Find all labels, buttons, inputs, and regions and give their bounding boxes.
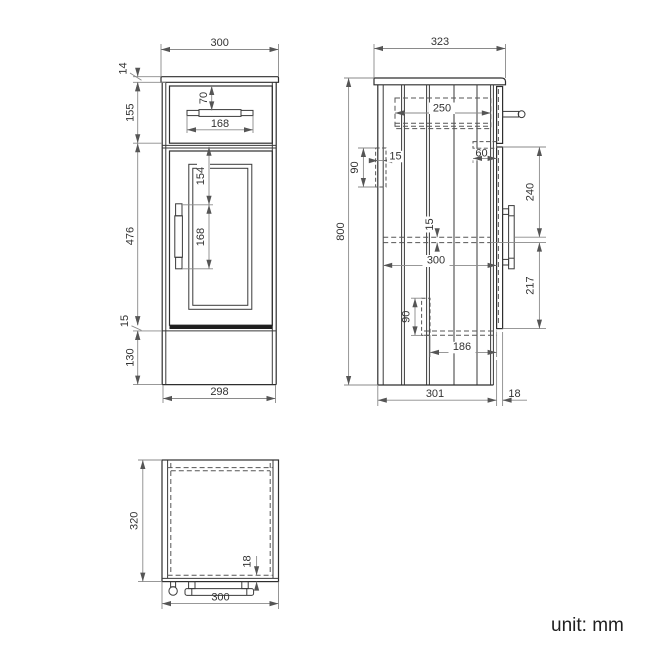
dim-label-side-total-height: 800	[335, 222, 347, 240]
dim-label-side-back-gap: 15	[389, 151, 401, 163]
dim-label-side-bracket-bottom: 90	[401, 311, 413, 323]
front-countertop	[161, 77, 279, 83]
top-view: 320 18 300	[129, 460, 279, 609]
dim-front-width-bottom: 298	[163, 385, 276, 403]
front-drawer-front	[170, 86, 273, 143]
dim-label-front-bottom-gap: 15	[119, 315, 131, 327]
dim-label-side-depth-bottom: 301	[426, 388, 444, 400]
dim-label-front-door-height: 476	[125, 227, 137, 245]
dim-side-bottom-rail: 186	[430, 332, 497, 357]
dim-side-total-height: 800	[335, 78, 378, 385]
dim-front-drawer-height: 155	[125, 82, 163, 143]
dim-label-front-door-handle-length: 168	[195, 228, 207, 246]
dim-side-door-thickness: 18	[503, 332, 527, 406]
dim-label-side-door-thickness: 18	[508, 388, 520, 400]
front-door-handle	[175, 204, 183, 269]
dim-front-plinth-height: 130	[125, 331, 163, 385]
side-countertop	[374, 78, 506, 85]
unit-label: unit: mm	[551, 615, 624, 636]
front-door-bottom-edge	[170, 325, 273, 329]
dim-label-front-door-handle-top: 154	[195, 167, 207, 185]
top-carcass	[162, 460, 279, 582]
dim-label-side-bottom-rail: 186	[453, 341, 471, 353]
dim-label-front-drawer-handle-width: 168	[211, 118, 229, 130]
top-cabinet-outline	[162, 460, 279, 582]
side-door-handle	[503, 206, 515, 269]
dim-label-side-handle-top-offset: 240	[525, 183, 537, 201]
dim-side-shelf-depth: 300	[383, 254, 496, 267]
dim-label-front-drawer-handle-offset: 70	[198, 92, 210, 104]
side-drawer	[395, 87, 525, 144]
side-view: 323 800 250 15 90	[335, 36, 546, 406]
front-door	[170, 151, 273, 329]
dim-top-door-thickness: 18	[242, 555, 257, 589]
dim-side-bracket-bottom: 90	[401, 298, 422, 335]
dim-front-door-height: 476	[125, 143, 138, 325]
dim-label-side-bracket-top: 90	[349, 161, 361, 173]
dim-side-bracket-top: 90	[349, 148, 376, 187]
dim-top-width: 300	[162, 582, 279, 609]
front-view: 300 14 155 476 15	[118, 37, 279, 403]
dim-label-top-depth: 320	[129, 512, 141, 530]
dim-label-side-depth-top: 323	[431, 36, 449, 48]
dim-label-top-door-thickness: 18	[242, 555, 254, 567]
drawing-svg: 300 14 155 476 15	[0, 0, 650, 650]
front-drawer-handle	[187, 110, 253, 117]
top-drawer-knob	[169, 582, 177, 596]
side-door-panel	[497, 147, 503, 329]
dim-front-drawer-handle-width: 168	[187, 116, 253, 133]
dim-label-side-handle-bottom: 217	[525, 276, 537, 294]
dim-label-side-hinge-depth: 60	[475, 148, 487, 160]
dim-label-front-width-bottom: 298	[210, 386, 228, 398]
cabinet-technical-drawing: 300 14 155 476 15	[0, 0, 650, 650]
dim-side-handle-top-offset: 240	[503, 147, 546, 237]
dim-side-drawer-depth: 250	[395, 103, 491, 115]
dim-label-side-shelf-thickness: 15	[424, 218, 436, 230]
side-drawer-knob	[503, 111, 525, 118]
front-door-panel	[170, 151, 273, 325]
dim-front-bottom-gap: 15	[119, 315, 162, 339]
dim-label-front-plinth-height: 130	[125, 348, 137, 366]
dim-label-side-shelf-depth: 300	[427, 254, 445, 266]
dim-top-depth: 320	[129, 460, 163, 582]
dim-front-door-handle-length: 168	[182, 205, 213, 269]
dim-side-back-gap: 15	[370, 151, 404, 163]
dim-label-side-drawer-depth: 250	[433, 103, 451, 115]
dim-side-depth-bottom: 301	[378, 360, 497, 406]
dim-label-front-counter-thickness: 14	[118, 62, 130, 74]
side-bracket-bottom-hidden	[422, 298, 430, 335]
dim-label-front-width-top: 300	[211, 37, 229, 49]
front-drawer	[170, 86, 273, 143]
dim-front-counter-thickness: 14	[118, 62, 166, 89]
side-brackets-and-shelf	[376, 148, 497, 335]
dim-side-depth-top: 323	[374, 36, 506, 78]
dim-label-top-width: 300	[211, 592, 229, 604]
side-drawer-front	[497, 87, 503, 144]
dim-front-width-top: 300	[161, 37, 279, 77]
dim-front-door-handle-top: 154	[182, 147, 213, 205]
side-wall-bracket-top-hidden	[376, 148, 386, 187]
dim-front-drawer-handle-offset: 70	[198, 86, 212, 110]
dim-side-handle-bottom: 217	[491, 243, 546, 329]
dim-label-front-drawer-height: 155	[125, 104, 137, 122]
